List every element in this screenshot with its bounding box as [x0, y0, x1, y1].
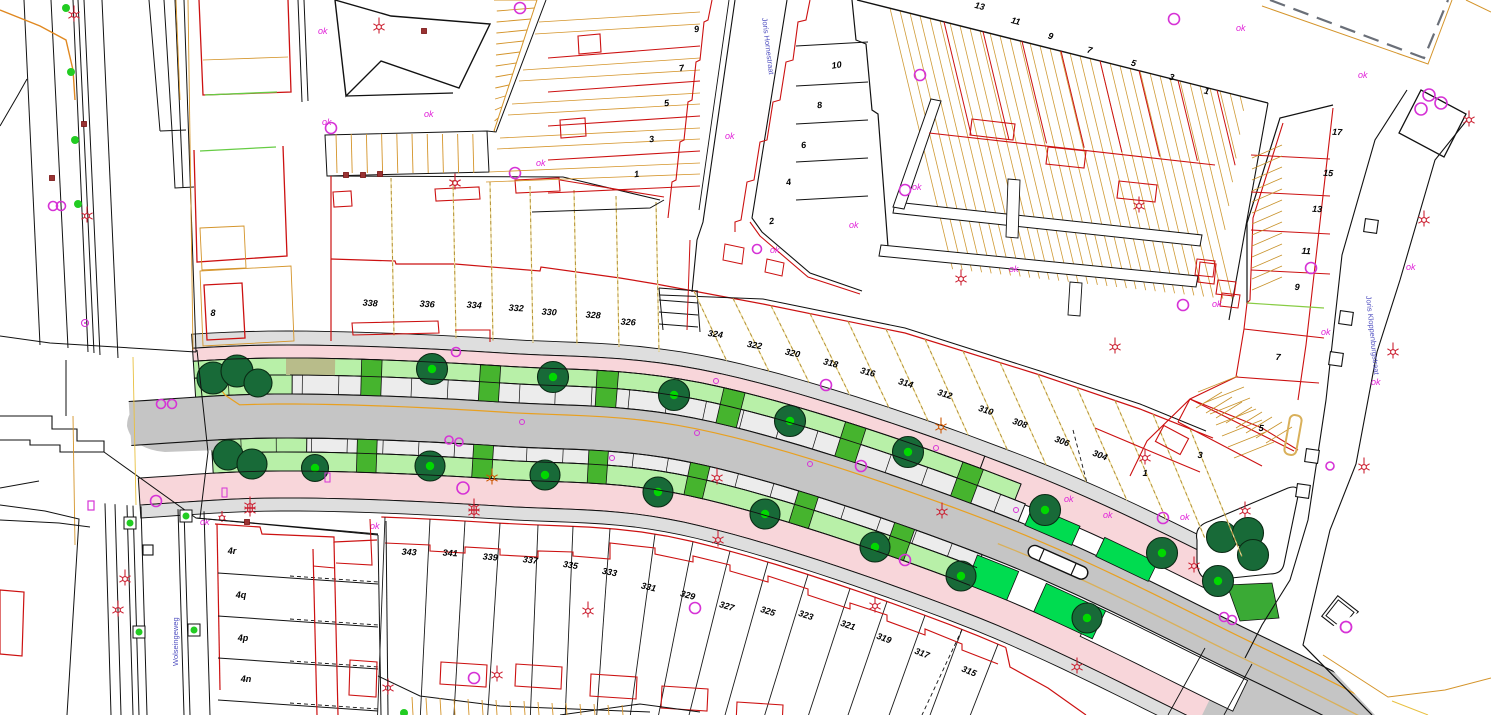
svg-text:330: 330 [541, 306, 557, 317]
svg-text:9: 9 [1294, 282, 1300, 292]
svg-text:4n: 4n [240, 674, 252, 684]
svg-text:334: 334 [466, 299, 482, 310]
svg-text:ok: ok [1236, 23, 1246, 33]
svg-text:11: 11 [1301, 246, 1311, 256]
svg-text:ok: ok [1064, 494, 1074, 504]
svg-text:ok: ok [1406, 262, 1416, 272]
svg-text:17: 17 [1332, 127, 1344, 138]
svg-text:4p: 4p [237, 633, 249, 643]
svg-text:339: 339 [482, 551, 498, 562]
svg-text:328: 328 [585, 309, 601, 320]
svg-text:338: 338 [362, 297, 378, 308]
svg-text:332: 332 [508, 302, 524, 313]
svg-text:3: 3 [1197, 450, 1203, 460]
svg-text:ok: ok [1358, 70, 1368, 80]
svg-text:336: 336 [419, 298, 436, 309]
svg-text:ok: ok [1180, 512, 1190, 522]
svg-text:326: 326 [620, 316, 637, 327]
svg-text:ok: ok [912, 182, 922, 192]
svg-text:4q: 4q [235, 590, 247, 600]
svg-text:ok: ok [1103, 510, 1113, 520]
svg-text:ok: ok [770, 245, 780, 255]
svg-text:ok: ok [1009, 264, 1019, 274]
svg-text:4r: 4r [227, 546, 237, 556]
svg-text:ok: ok [1212, 299, 1222, 309]
svg-text:ok: ok [849, 220, 859, 230]
svg-text:10: 10 [831, 59, 842, 70]
svg-text:8: 8 [210, 308, 215, 318]
svg-text:ok: ok [1321, 327, 1331, 337]
svg-text:1: 1 [1142, 468, 1148, 478]
svg-text:324: 324 [707, 328, 723, 340]
svg-text:ok: ok [370, 521, 380, 531]
svg-text:337: 337 [522, 554, 539, 566]
svg-text:ok: ok [318, 26, 328, 36]
svg-text:15: 15 [1323, 168, 1335, 179]
svg-text:ok: ok [1371, 377, 1381, 387]
svg-text:343: 343 [401, 547, 417, 558]
svg-text:13: 13 [1312, 204, 1323, 215]
svg-text:341: 341 [442, 547, 458, 558]
svg-text:Wolseingeweg: Wolseingeweg [171, 617, 180, 666]
svg-text:ok: ok [424, 109, 434, 119]
svg-text:ok: ok [536, 158, 546, 168]
svg-text:ok: ok [725, 131, 735, 141]
